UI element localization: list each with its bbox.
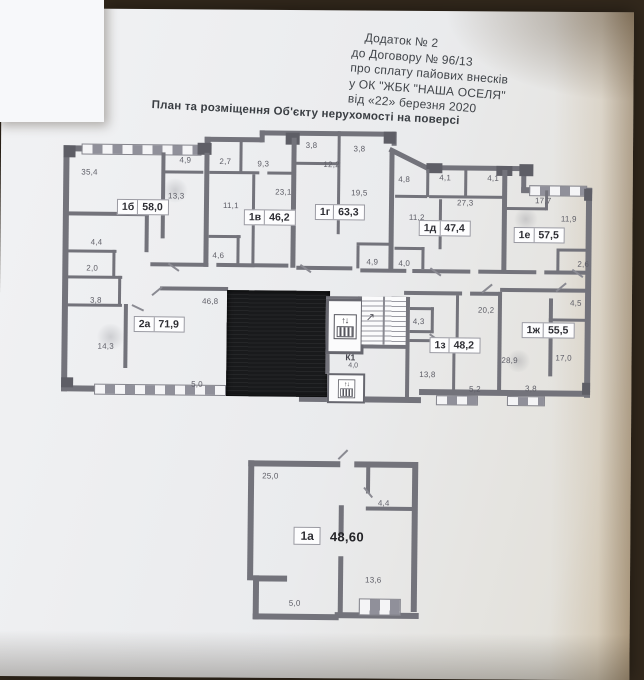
wall bbox=[395, 195, 427, 198]
room-area-label: 11,1 bbox=[223, 201, 239, 210]
wall bbox=[239, 139, 242, 173]
room-area-label: 2,6 bbox=[577, 260, 589, 269]
room-area-label: 13,8 bbox=[419, 370, 435, 379]
room-area-label: 4,9 bbox=[366, 257, 378, 266]
wall-pier bbox=[584, 189, 592, 201]
room-area-label: 23,1 bbox=[275, 188, 291, 197]
wall bbox=[421, 247, 424, 269]
apartment-area: 63,3 bbox=[334, 205, 364, 219]
room-area-label: 4,5 bbox=[570, 299, 582, 308]
wall bbox=[356, 245, 359, 268]
wall bbox=[338, 556, 344, 616]
wall bbox=[478, 270, 536, 275]
room-area-label: 25,0 bbox=[262, 471, 278, 480]
room-area-label: 46,8 bbox=[202, 297, 218, 306]
photo-of-document: { "colors":{"background":"#32281c","pape… bbox=[0, 0, 644, 670]
apartment-area: 58,0 bbox=[138, 200, 168, 214]
room-area-label: 19,5 bbox=[351, 188, 367, 197]
wall bbox=[456, 295, 459, 341]
wall bbox=[144, 212, 148, 252]
apartment-label-1b: 1б 58,0 bbox=[117, 199, 169, 216]
apartment-id: 1в bbox=[245, 210, 265, 224]
wall-pier bbox=[61, 377, 73, 387]
apartment-area: 46,2 bbox=[265, 210, 295, 224]
wall bbox=[253, 613, 339, 620]
apartment-label-1d: 1д 47,4 bbox=[419, 220, 471, 237]
elevator-icon: ↑↓ bbox=[337, 379, 354, 398]
room-area-label: 5,0 bbox=[289, 599, 301, 608]
wall bbox=[395, 247, 425, 250]
room-area-label: 28,9 bbox=[501, 356, 517, 365]
wall bbox=[411, 462, 419, 612]
balcony-wall bbox=[82, 143, 202, 155]
wall bbox=[66, 275, 122, 279]
room-area-label: 4,8 bbox=[398, 175, 410, 184]
room-area-label: 20,2 bbox=[478, 306, 494, 315]
wall bbox=[236, 235, 239, 265]
wall bbox=[556, 251, 559, 271]
wall bbox=[163, 170, 203, 173]
wall bbox=[61, 145, 70, 391]
wall bbox=[337, 131, 340, 163]
apartment-label-1g: 1г 63,3 bbox=[315, 204, 365, 221]
apartment-area: 47,4 bbox=[440, 221, 470, 235]
room-area-label: 9,3 bbox=[257, 159, 269, 168]
wall bbox=[557, 248, 589, 251]
apartment-area: 57,5 bbox=[534, 228, 564, 242]
apartment-id: 1а bbox=[293, 527, 321, 545]
apartment-label-1z: 1з 48,2 bbox=[429, 337, 480, 354]
door-swing bbox=[132, 304, 145, 311]
room-area-label: 2,7 bbox=[219, 157, 231, 166]
door-swing bbox=[151, 286, 162, 296]
wall bbox=[205, 137, 263, 143]
apartment-id: 1б bbox=[118, 200, 138, 214]
room-area-label: 11,9 bbox=[561, 215, 577, 224]
balcony-wall bbox=[529, 185, 587, 197]
balcony-wall bbox=[359, 598, 401, 615]
room-area-label: 13,6 bbox=[365, 575, 381, 584]
door-swing bbox=[338, 449, 349, 460]
room-area-label: 4,3 bbox=[413, 317, 425, 326]
apartment-id: 1д bbox=[420, 221, 441, 235]
balcony-wall bbox=[436, 395, 478, 405]
apartment-label-1a: 1а 48,60 bbox=[293, 527, 364, 546]
apartment-id: 2а bbox=[135, 317, 155, 331]
room-area-label: 3,8 bbox=[525, 384, 537, 393]
wall bbox=[404, 291, 462, 296]
room-area-label: 35,4 bbox=[81, 167, 97, 176]
redacted-unit-block bbox=[226, 290, 330, 397]
apartment-area: 48,2 bbox=[450, 338, 480, 352]
apartment-label-1v: 1в 46,2 bbox=[244, 209, 296, 226]
room-area-label: 4,6 bbox=[212, 251, 224, 260]
wall bbox=[388, 151, 394, 271]
apartment-label-1e: 1е 57,5 bbox=[514, 227, 565, 244]
room-area-label: 4,4 bbox=[91, 238, 103, 247]
apartment-id: 1е bbox=[515, 228, 535, 242]
room-area-label: 17,0 bbox=[555, 353, 571, 362]
wall bbox=[247, 460, 254, 580]
wall bbox=[549, 318, 589, 321]
apartment-id: 1ж bbox=[523, 323, 544, 337]
elevator-cab-icon bbox=[336, 326, 353, 337]
room-area-label: 14,3 bbox=[97, 342, 113, 351]
elevator-shaft: ↑↓ bbox=[327, 373, 365, 403]
wall bbox=[150, 262, 208, 267]
wall bbox=[357, 242, 391, 245]
wall-pier bbox=[582, 383, 590, 395]
room-area-label: 27,3 bbox=[457, 198, 473, 207]
wall bbox=[112, 250, 115, 278]
room-area-label: 13,3 bbox=[168, 191, 184, 200]
room-area-label: 3,8 bbox=[306, 141, 318, 150]
wall bbox=[360, 268, 406, 272]
core-room-label: К1 bbox=[345, 352, 355, 362]
room-area-label: 2,0 bbox=[86, 264, 98, 273]
room-area-label: 5,2 bbox=[469, 385, 481, 394]
wall bbox=[412, 269, 470, 274]
wall bbox=[501, 170, 507, 272]
wall bbox=[118, 276, 121, 306]
balcony-wall bbox=[94, 384, 226, 396]
apartment-label-2a: 2а 71,9 bbox=[134, 316, 185, 333]
wall bbox=[290, 138, 296, 268]
wall bbox=[354, 461, 416, 468]
wall bbox=[470, 292, 500, 296]
apartment-label-1zh: 1ж 55,5 bbox=[522, 322, 575, 339]
room-area-label: 3,8 bbox=[354, 144, 366, 153]
wall-pier bbox=[519, 164, 533, 176]
wall-pier bbox=[63, 145, 75, 157]
room-area-label: 4,4 bbox=[378, 499, 390, 508]
wall bbox=[497, 292, 502, 392]
wall bbox=[426, 169, 429, 197]
stair-direction-arrow-icon: ↗ bbox=[366, 310, 375, 323]
room-area-label: 4,1 bbox=[439, 173, 451, 182]
apartment-id: 1г bbox=[316, 205, 334, 219]
balcony-wall bbox=[507, 396, 545, 406]
elevator-shaft: ↑↓ bbox=[325, 298, 364, 354]
stair-stringer bbox=[383, 297, 386, 345]
wall bbox=[464, 170, 467, 198]
room-area-label: 4,0 bbox=[398, 259, 410, 268]
wall-pier bbox=[384, 132, 396, 144]
apartment-area: 71,9 bbox=[154, 317, 184, 331]
elevator-arrows-icon: ↑↓ bbox=[343, 380, 348, 387]
wall bbox=[248, 460, 340, 467]
apartment-id: 1з bbox=[430, 338, 449, 352]
room-area-label: 4,1 bbox=[487, 174, 499, 183]
staircase: ↗ bbox=[362, 296, 407, 344]
wall bbox=[66, 249, 116, 253]
room-area-label: 12,2 bbox=[323, 160, 339, 169]
wall bbox=[361, 344, 405, 348]
wall bbox=[260, 130, 396, 136]
room-area-label: 3,8 bbox=[90, 296, 102, 305]
wall bbox=[500, 288, 588, 293]
room-area-label: 5,0 bbox=[191, 380, 203, 389]
wall bbox=[160, 286, 228, 291]
wall bbox=[337, 162, 341, 234]
apartment-area: 48,60 bbox=[330, 529, 364, 544]
room-area-label: 4,9 bbox=[179, 156, 191, 165]
room-area-label: 17,7 bbox=[535, 196, 551, 205]
wall bbox=[267, 171, 293, 174]
floor-plan: ↑↓ ↗ К1 4,0 ↑↓ 1б 58,0 1в 46,2 1г 63,3 bbox=[0, 0, 644, 673]
elevator-cab-icon bbox=[340, 388, 353, 396]
apartment-area: 55,5 bbox=[544, 323, 574, 337]
elevator-arrows-icon: ↑↓ bbox=[341, 316, 348, 325]
core-room-area: 4,0 bbox=[348, 362, 358, 369]
elevator-icon: ↑↓ bbox=[333, 314, 356, 339]
